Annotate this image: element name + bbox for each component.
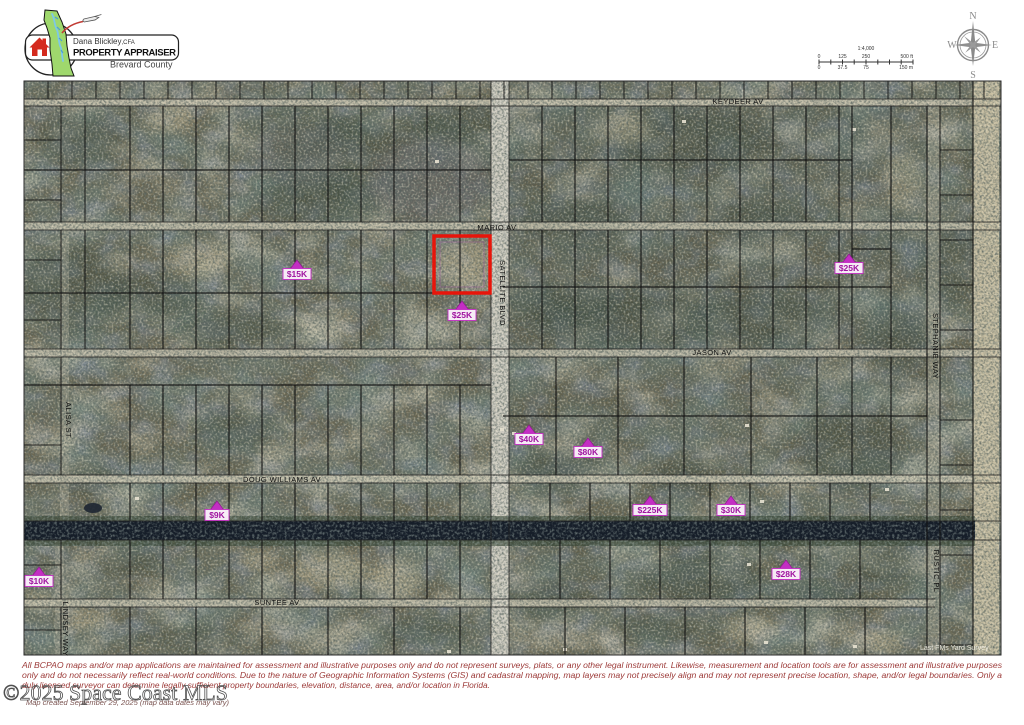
svg-text:W: W	[947, 40, 957, 51]
svg-text:$25K: $25K	[839, 263, 860, 273]
svg-text:only and do not necessarily re: only and do not necessarily reflect real…	[22, 671, 1003, 680]
svg-text:75: 75	[863, 65, 869, 71]
svg-text:JASON AV: JASON AV	[692, 348, 731, 357]
svg-text:37.5: 37.5	[838, 65, 848, 71]
svg-text:$225K: $225K	[637, 505, 663, 515]
svg-text:©2025 Space Coast MLS: ©2025 Space Coast MLS	[3, 680, 228, 705]
svg-text:0: 0	[818, 65, 821, 71]
svg-text:RUSTIC PL: RUSTIC PL	[932, 550, 941, 593]
svg-text:$40K: $40K	[519, 434, 540, 444]
svg-text:All BCPAO maps and/or map appl: All BCPAO maps and/or map applications a…	[21, 661, 1002, 670]
svg-text:PROPERTY APPRAISER: PROPERTY APPRAISER	[73, 48, 176, 59]
svg-text:500 ft: 500 ft	[900, 54, 913, 60]
svg-text:SUNTEE AV: SUNTEE AV	[254, 598, 299, 607]
svg-text:$15K: $15K	[287, 269, 308, 279]
svg-text:125: 125	[838, 54, 847, 60]
svg-text:$30K: $30K	[721, 505, 742, 515]
svg-text:N: N	[969, 11, 976, 22]
svg-text:Brevard County: Brevard County	[110, 60, 173, 70]
svg-text:Last FMs Yard Survey: Last FMs Yard Survey	[920, 645, 989, 652]
svg-text:LINDSEY WAY: LINDSEY WAY	[61, 602, 70, 657]
svg-text:S: S	[970, 70, 976, 81]
svg-text:$25K: $25K	[452, 310, 473, 320]
svg-text:KEYDEER AV: KEYDEER AV	[713, 97, 764, 106]
svg-text:ALISA ST: ALISA ST	[64, 402, 73, 438]
svg-text:250: 250	[862, 54, 871, 60]
svg-text:DOUG WILLIAMS AV: DOUG WILLIAMS AV	[243, 475, 321, 484]
svg-text:STEPHANIE WAY: STEPHANIE WAY	[931, 313, 940, 379]
svg-text:E: E	[992, 40, 998, 51]
svg-text:MARIO AV: MARIO AV	[478, 223, 517, 232]
svg-text:$28K: $28K	[776, 569, 797, 579]
svg-text:1:4,000: 1:4,000	[858, 46, 875, 52]
svg-text:SATELLITE BLVD: SATELLITE BLVD	[498, 260, 507, 326]
svg-text:$10K: $10K	[29, 576, 50, 586]
svg-text:0: 0	[818, 54, 821, 60]
svg-text:$9K: $9K	[209, 510, 225, 520]
svg-text:$80K: $80K	[578, 447, 599, 457]
svg-text:150 m: 150 m	[899, 65, 913, 71]
